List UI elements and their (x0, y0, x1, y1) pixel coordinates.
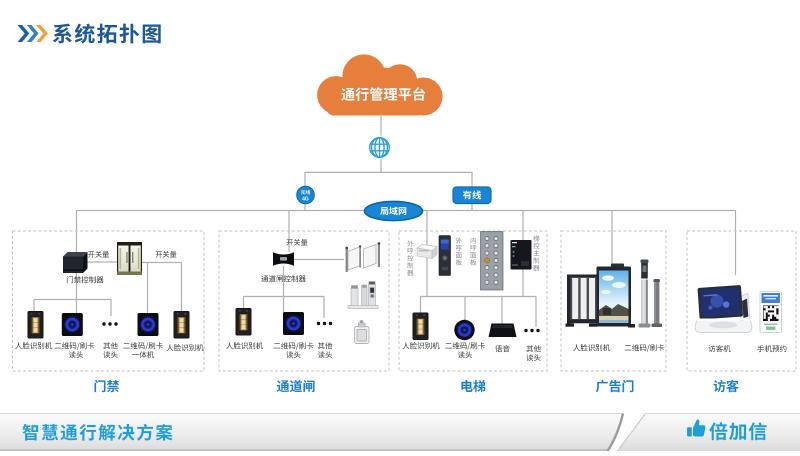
svg-text:4G: 4G (302, 197, 309, 203)
